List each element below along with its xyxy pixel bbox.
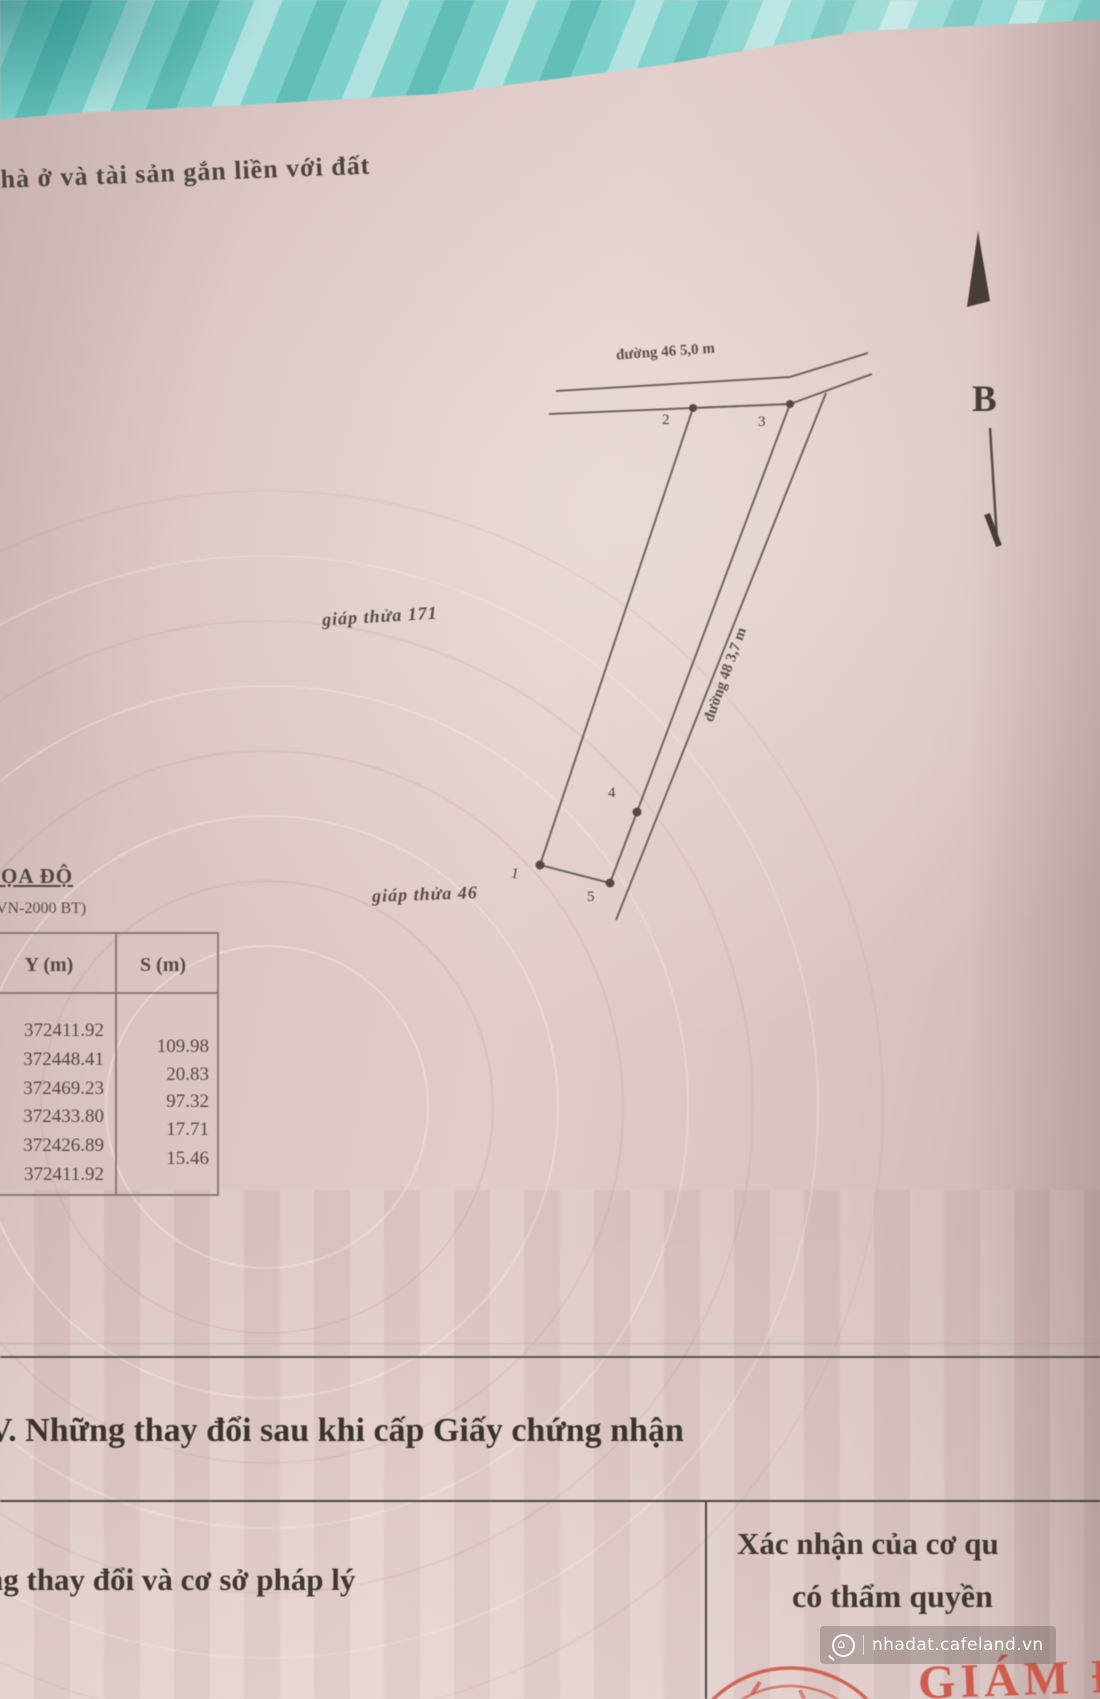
table-header-divider: [0, 992, 217, 994]
footer-left-cell-fragment: ng thay đổi và cơ sở pháp lý: [0, 1562, 355, 1598]
y-value: 372469.23: [0, 1078, 104, 1100]
road-48-outer-line: [616, 393, 826, 920]
vertex-label-3: 3: [758, 414, 766, 431]
s-value: 97.32: [123, 1091, 209, 1113]
y-value: 372411.92: [0, 1164, 104, 1186]
section-divider-faint: [0, 1343, 1100, 1344]
y-value: 372426.89: [0, 1135, 104, 1157]
vertex-label-5: 5: [587, 889, 595, 906]
watermark-text: nhadat.cafeland.vn: [872, 1635, 1044, 1655]
house-glyph: ⌂: [837, 1637, 846, 1652]
watermark-divider: [863, 1635, 864, 1655]
footer-right-cell-line1: Xác nhận của cơ qu: [737, 1526, 999, 1562]
s-value: 15.46: [123, 1148, 209, 1170]
vertex-label-4: 4: [608, 785, 616, 802]
col-header-s: S (m): [123, 954, 203, 977]
north-arrow-head-icon: [967, 231, 990, 307]
s-value: 20.83: [123, 1064, 209, 1086]
section-divider: [0, 1356, 1100, 1358]
vertex-label-2: 2: [662, 412, 670, 429]
road-46-upper-line: [556, 353, 868, 391]
adjacent-plot-46-label: giáp thửa 46: [372, 882, 478, 907]
table-column-divider: [115, 934, 117, 1194]
vertex-dot: [633, 808, 642, 817]
y-value: 372411.92: [0, 1020, 104, 1042]
vertex-dot: [536, 861, 545, 870]
house-search-icon: ⌂: [832, 1634, 855, 1657]
red-stamp-arc: [680, 1668, 900, 1699]
coords-title-fragment: TỌA ĐỘ: [0, 864, 73, 889]
footer-table-column-divider: [705, 1500, 707, 1699]
watermark-badge: ⌂ nhadat.cafeland.vn: [820, 1626, 1056, 1664]
col-header-y: Y (m): [0, 954, 109, 977]
plot-boundary: [540, 404, 790, 883]
coords-table: Y (m) S (m) 372411.92 372448.41 372469.2…: [0, 932, 219, 1196]
stamp-mark: [800, 1690, 804, 1699]
vertex-dot: [689, 404, 697, 412]
vertex-dot: [786, 400, 794, 408]
footer-right-cell-line2: có thẩm quyền: [792, 1578, 993, 1615]
vertex-dot: [606, 879, 615, 888]
s-value: 17.71: [123, 1119, 209, 1141]
section-v-heading: V. Những thay đổi sau khi cấp Giấy chứng…: [0, 1412, 684, 1450]
coords-datum-fragment: VN-2000 BT): [0, 900, 86, 918]
certificate-photo: nhà ở và tài sản gắn liền với đất: [0, 0, 1100, 1699]
vertex-dots: [536, 400, 795, 888]
y-value: 372448.41: [0, 1049, 104, 1071]
s-value: 109.98: [123, 1036, 209, 1058]
y-value: 372433.80: [0, 1106, 104, 1128]
north-label: B: [972, 378, 997, 421]
footer-table-top-border: [0, 1500, 1100, 1502]
stamp-outer-ring: [680, 1668, 900, 1699]
photo-layer: nhà ở và tài sản gắn liền với đất: [0, 0, 1100, 1699]
